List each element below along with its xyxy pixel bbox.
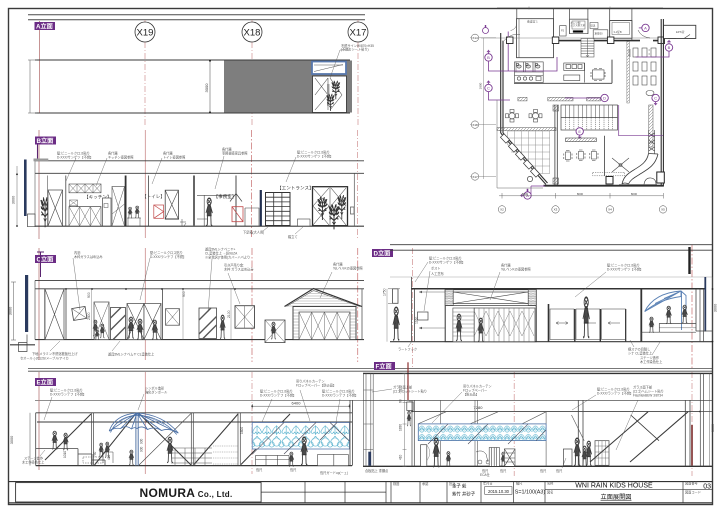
svg-text:セオール (-2012S/メープル/アイカ: セオール (-2012S/メープル/アイカ [20,356,69,361]
svg-text:名称: 名称 [547,481,554,486]
svg-text:湯沸: 湯沸 [591,24,596,28]
svg-text:3000: 3000 [711,424,715,432]
svg-text:1830: 1830 [399,424,403,431]
svg-text:長尺ガードup(ーュ): 長尺ガードup(ーュ) [320,470,348,475]
svg-text:1750: 1750 [383,288,387,296]
svg-text:トイレ姿図参照: トイレ姿図参照 [163,155,186,160]
svg-text:S=1/100(A3): S=1/100(A3) [515,490,546,496]
svg-text:長尺: 長尺 [500,468,507,473]
svg-text:承認: 承認 [422,481,429,486]
svg-text:下地:メラミン不燃化粧板仕上げ: 下地:メラミン不燃化粧板仕上げ [32,351,78,356]
svg-text:木枠ガラスはめ込み: 木枠ガラスはめ込み [74,254,103,259]
svg-text:450: 450 [107,454,111,460]
svg-text:D-XXX/ランテツ【不燃】: D-XXX/ランテツ【不燃】 [597,391,633,396]
svg-text:図名: 図名 [547,489,553,494]
svg-text:03: 03 [703,484,711,491]
svg-text:※全資訳(7体用)カバーハベより: ※全資訳(7体用)カバーハベより [205,255,250,260]
svg-text:X5: X5 [661,208,665,212]
svg-text:A立面: A立面 [36,23,53,31]
svg-text:60: 60 [399,399,403,403]
svg-text:6400: 6400 [292,401,302,406]
svg-text:倉庫50: 倉庫50 [595,32,604,36]
svg-text:900: 900 [140,446,144,452]
svg-text:X19: X19 [137,28,154,39]
svg-text:ポスト: ポスト [431,266,441,271]
svg-text:踏立て: 踏立て [288,234,298,239]
svg-text:長尺: 長尺 [540,468,547,473]
svg-text:X2: X2 [500,208,504,212]
svg-text:TeLベルKの姿図参照: TeLベルKの姿図参照 [333,266,363,271]
svg-text:D-XXX/ランテフ【不燃】: D-XXX/ランテフ【不燃】 [322,393,358,398]
svg-text:【トイレ】: 【トイレ】 [142,194,165,199]
svg-text:D-XXX/サンゲツ【不燃】: D-XXX/サンゲツ【不燃】 [607,267,643,272]
svg-text:EPS室: EPS室 [676,30,685,34]
svg-text:検図: 検図 [393,481,399,486]
svg-text:合板貼上 重棚点: 合板貼上 重棚点 [365,468,389,473]
svg-text:900: 900 [182,291,186,297]
svg-text:D-XXX/サンゲツ【不燃】: D-XXX/サンゲツ【不燃】 [429,260,465,265]
svg-text:D: D [603,96,606,101]
svg-text:900: 900 [87,292,91,298]
svg-text:遊具5MLシナベムヤ CL塗装仕上: 遊具5MLシナベムヤ CL塗装仕上 [108,352,155,357]
svg-text:キッチン姿図参照: キッチン姿図参照 [108,155,134,160]
svg-text:木工作染色仕上: 木工作染色仕上 [22,460,45,465]
svg-text:図面コード: 図面コード [685,491,701,495]
svg-text:D-XXX/ランテフ【不燃】: D-XXX/ランテフ【不燃】 [260,393,296,398]
svg-text:2400: 2400 [87,312,91,320]
svg-text:よびス親え室: よびス親え室 [571,23,586,27]
svg-text:シナ CL塗装仕上: シナ CL塗装仕上 [628,351,653,356]
svg-text:【事務室】: 【事務室】 [214,193,237,200]
svg-text:2100: 2100 [227,310,231,318]
svg-text:3000: 3000 [10,436,14,444]
svg-text:X17: X17 [350,28,367,39]
svg-text:3000: 3000 [12,196,16,204]
svg-text:ラートフック: ラートフック [398,347,417,352]
svg-text:1800: 1800 [479,82,483,89]
svg-text:3000: 3000 [9,307,13,315]
svg-text:D立面: D立面 [374,250,391,258]
svg-text:図面番号: 図面番号 [685,481,698,486]
svg-text:C: C [654,96,657,101]
svg-text:B: B [668,45,671,50]
svg-text:年月日: 年月日 [483,481,493,486]
svg-text:FlashtekBEW 3/8734: FlashtekBEW 3/8734 [633,394,663,398]
svg-text:WNI RAIN KIDS HOUSE: WNI RAIN KIDS HOUSE [575,483,653,490]
svg-text:3000: 3000 [204,83,209,93]
svg-text:立面展開図: 立面展開図 [601,493,632,501]
svg-text:D-XXX/サンゲツ【不燃】: D-XXX/サンゲツ【不燃】 [57,155,93,160]
svg-text:X17: X17 [472,175,478,179]
svg-text:X14: X14 [472,36,478,40]
svg-text:人工芝布: 人工芝布 [431,271,444,276]
svg-text:ECA仕: ECA仕 [480,472,491,477]
svg-text:E立面: E立面 [37,379,54,387]
svg-text:8000: 8000 [577,192,584,196]
svg-text:紫竹 井砂子: 紫竹 井砂子 [452,490,476,497]
svg-text:750: 750 [93,451,97,457]
svg-text:2015.10.30: 2015.10.30 [488,489,510,494]
svg-text:X18: X18 [244,28,261,39]
svg-text:E: E [578,129,581,134]
svg-text:縮尺: 縮尺 [516,481,523,486]
svg-text:TeLベンKの姿図参照: TeLベンKの姿図参照 [501,267,531,272]
svg-text:900: 900 [140,438,144,444]
svg-text:木枠 ガラスはめ込み: 木枠 ガラスはめ込み [224,267,254,272]
svg-text:長尺: 長尺 [290,467,297,472]
svg-text:会議室 1: 会議室 1 [527,20,538,24]
svg-text:長尺: 長尺 [556,468,563,473]
svg-text:D-XXX/サンゲツ【不燃】: D-XXX/サンゲツ【不燃】 [297,154,333,159]
svg-text:1600: 1600 [240,427,244,434]
svg-text:D-XXX/ランテフ【不燃】: D-XXX/ランテフ【不燃】 [50,392,86,397]
svg-text:(不燃カシート貼り): (不燃カシート貼り) [341,47,369,52]
svg-text:長尺: 長尺 [256,467,263,472]
svg-text:事務量販家具参照: 事務量販家具参照 [222,151,248,156]
svg-text:F立面: F立面 [376,363,392,371]
svg-text:下足箱(大人用): 下足箱(大人用) [243,230,264,235]
svg-text:8000: 8000 [631,192,638,196]
svg-text:B: B [487,55,490,60]
svg-text:C: C [487,86,490,91]
svg-text:木工作染色仕上: 木工作染色仕上 [640,359,663,364]
svg-text:8000: 8000 [522,192,529,196]
svg-text:1010: 1010 [63,451,67,458]
svg-text:B立面: B立面 [37,137,54,145]
svg-text:【防炎品】: 【防炎品】 [463,392,479,397]
svg-text:Fロップペーパー【防炎品】: Fロップペーパー【防炎品】 [296,383,336,388]
svg-text:A: A [644,26,647,31]
svg-text:3-1促B: 3-1促B [614,30,622,34]
svg-text:X18: X18 [472,123,478,127]
svg-text:3000: 3000 [714,304,718,312]
svg-text:金子 毅: 金子 毅 [452,483,467,490]
svg-text:C立面: C立面 [37,256,54,264]
svg-text:強化ダンボール: 強化ダンボール [145,390,168,395]
svg-text:D-XXX/ランテフ【不燃】: D-XXX/ランテフ【不燃】 [150,254,186,259]
svg-text:(ロゴ)カットシート貼り: (ロゴ)カットシート貼り [393,389,427,394]
svg-text:X3: X3 [554,208,558,212]
svg-text:X4: X4 [608,208,612,212]
svg-text:410: 410 [399,454,403,460]
